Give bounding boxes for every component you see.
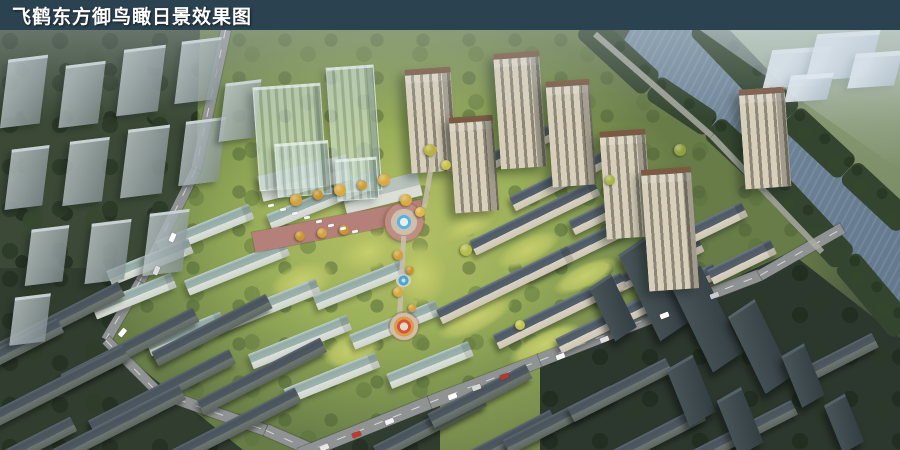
ornamental-tree [313,190,323,200]
car [319,443,329,450]
title-bar: 飞鹤东方御鸟瞰日景效果图 [0,0,900,30]
ornamental-tree [515,320,525,330]
ornamental-tree [441,160,451,170]
ornamental-tree [406,266,414,274]
car [351,430,361,438]
ornamental-tree [357,180,367,190]
ornamental-tree [334,184,346,196]
parked-car [316,219,322,223]
ornamental-tree [378,174,390,186]
car [447,393,457,401]
ornamental-tree [460,244,472,256]
car [168,232,176,242]
ornamental-tree [295,231,305,241]
parked-car [292,211,298,215]
car [384,417,394,425]
car [599,336,609,344]
car [471,384,481,392]
car [499,373,509,381]
rendering-canvas: 飞鹤东方御鸟瞰日景效果图 [0,0,900,450]
car [709,291,719,299]
car [555,353,565,361]
ornamental-tree [393,250,403,260]
car [659,312,669,320]
parked-car [304,215,310,219]
parked-car [268,203,274,207]
atmospheric-haze-top [0,30,900,120]
car [118,327,128,337]
ornamental-tree [674,144,686,156]
ornamental-tree [400,194,412,206]
ornamental-tree [393,287,403,297]
aerial-rendering-scene [0,30,900,450]
parked-car [328,223,334,227]
parked-car [280,207,286,211]
ornamental-tree [605,175,615,185]
ornamental-tree [415,207,425,217]
rendering-title: 飞鹤东方御鸟瞰日景效果图 [0,2,252,29]
ornamental-tree [317,228,327,238]
ornamental-tree [408,304,416,312]
parked-car [352,229,358,233]
ornamental-tree [424,144,436,156]
car [152,265,160,275]
ornamental-tree [290,194,302,206]
